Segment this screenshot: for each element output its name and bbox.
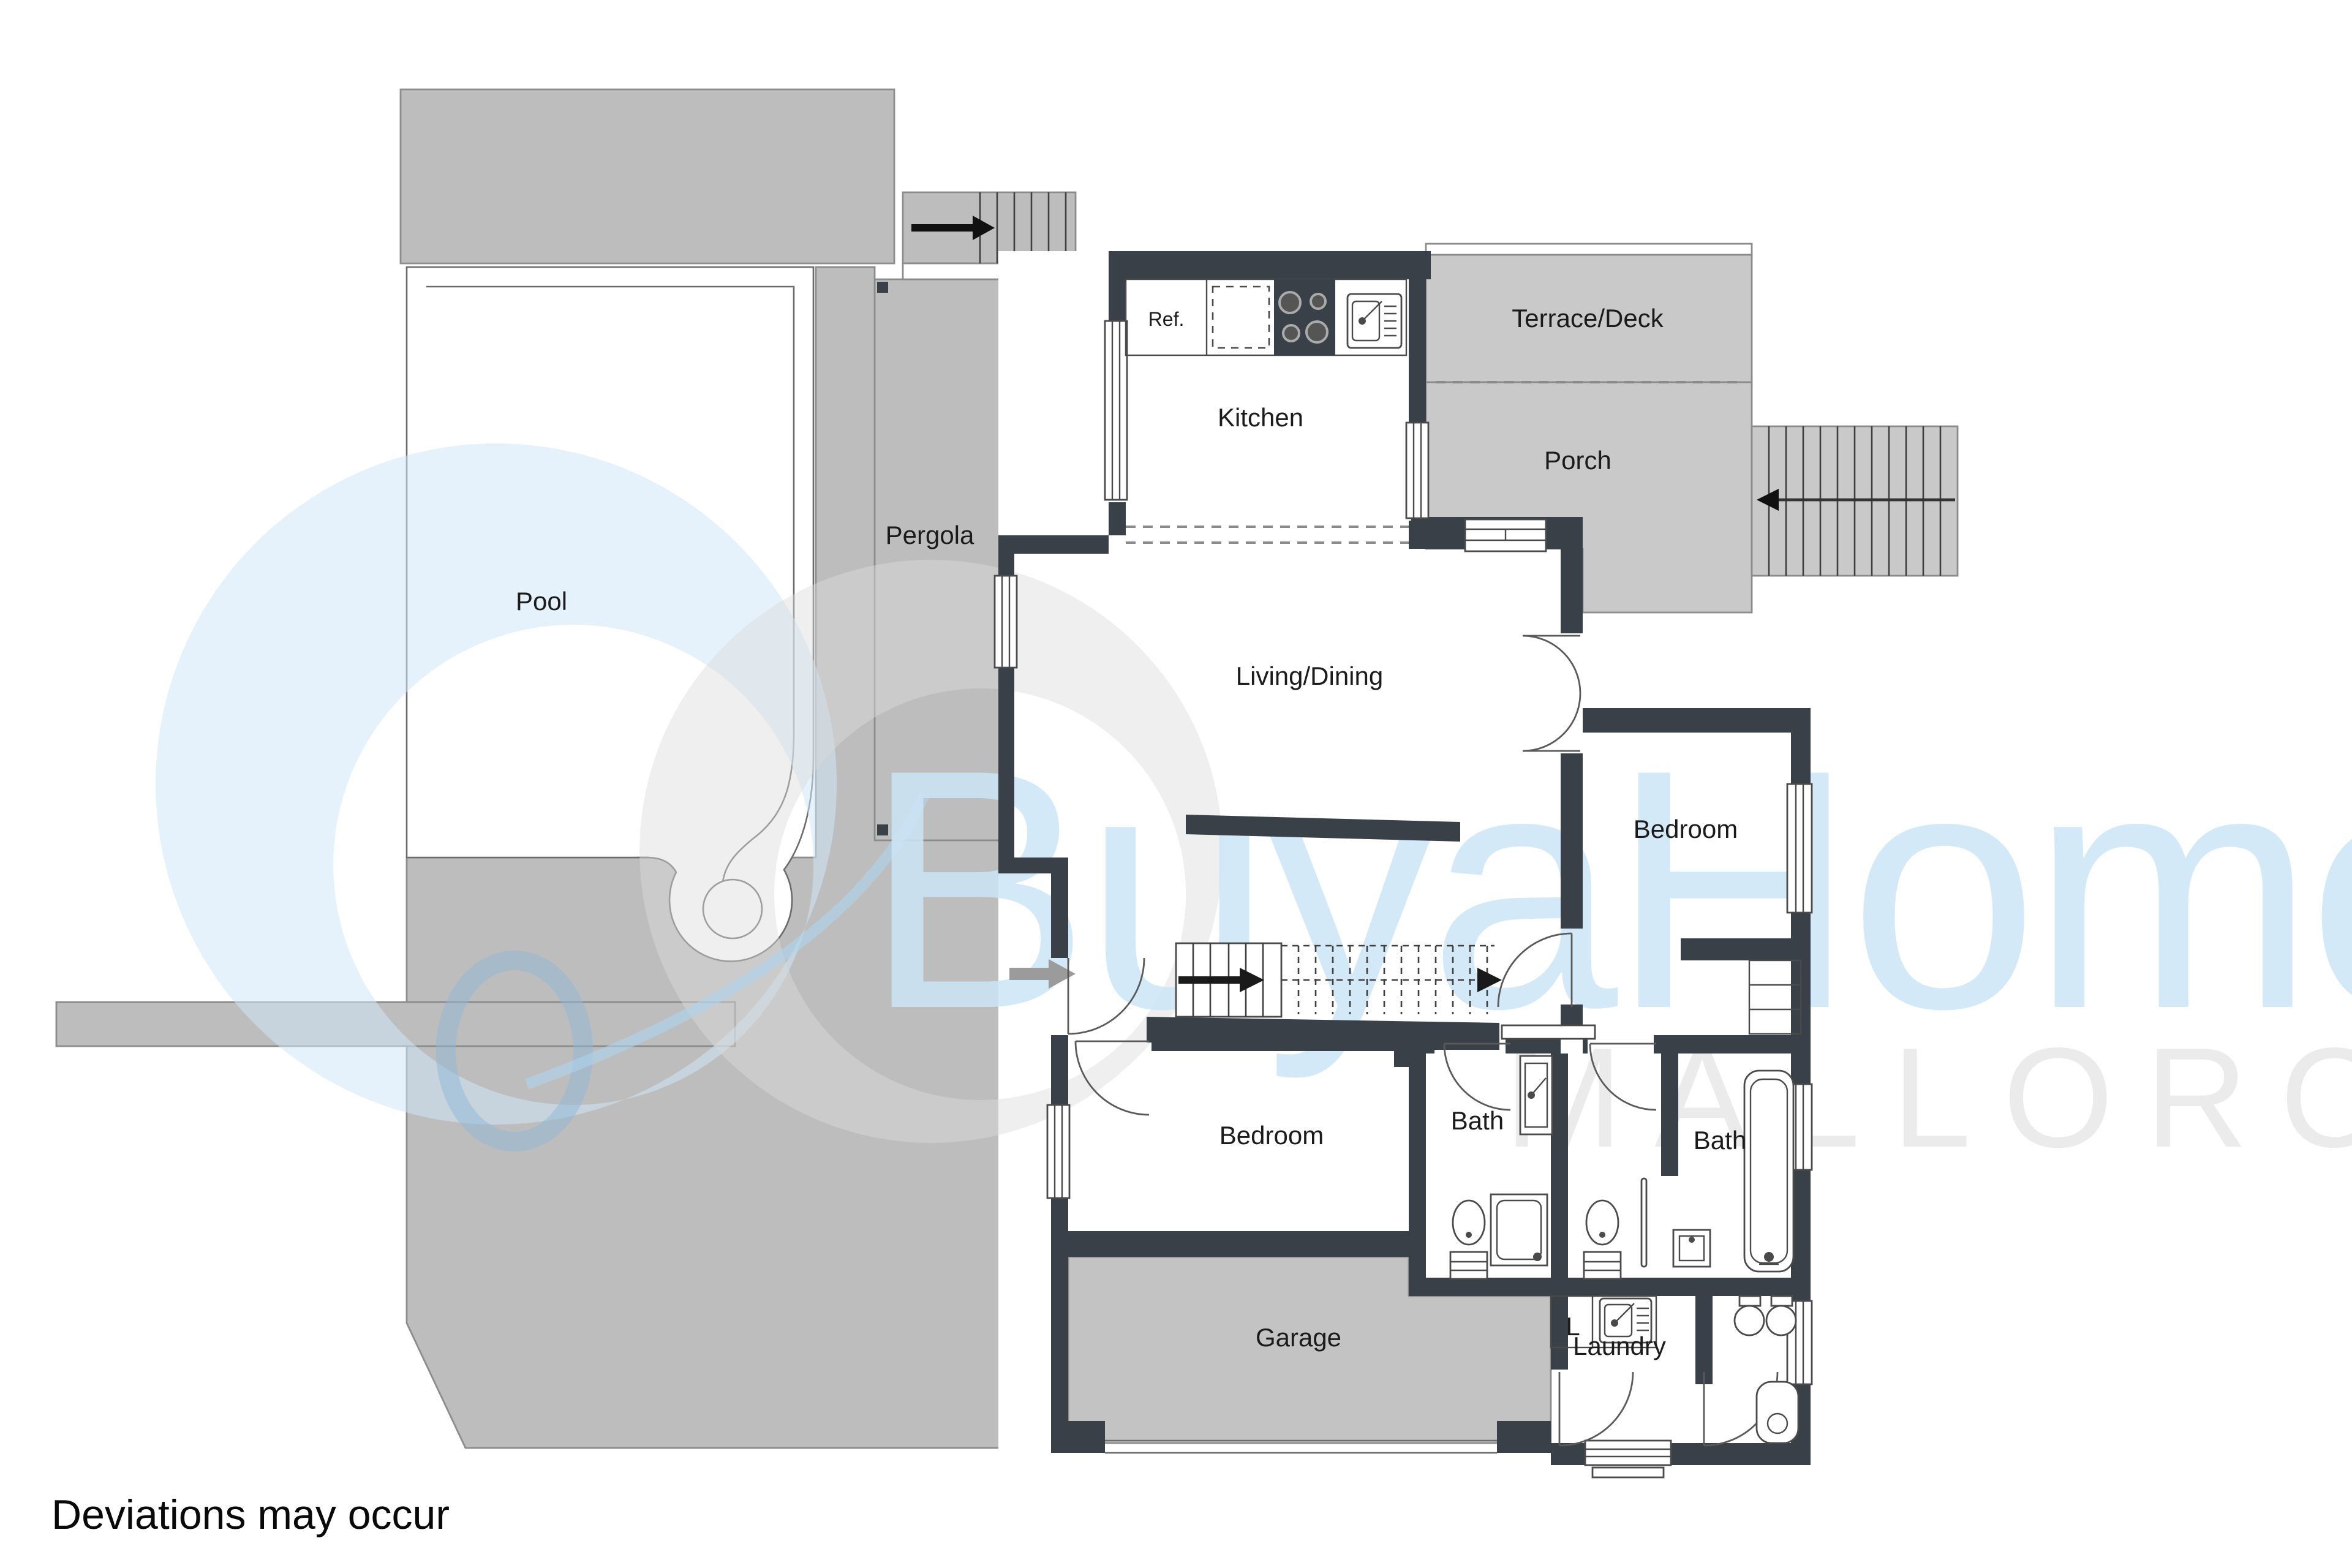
room-label-laundry: Laundry	[1573, 1332, 1666, 1360]
floor-plan: BuyaHome MALLORCA	[0, 0, 2352, 1568]
room-label-bedroom-left: Bedroom	[1219, 1121, 1324, 1150]
deck-top-band	[401, 89, 894, 263]
room-label-garage: Garage	[1256, 1323, 1341, 1352]
terrace-edge	[1426, 244, 1752, 255]
room-label-fridge: Ref.	[1148, 308, 1185, 330]
vanity-sink-icon	[1673, 1230, 1710, 1267]
room-label-kitchen: Kitchen	[1218, 403, 1303, 432]
stove-icon	[1274, 279, 1335, 355]
window	[1047, 1105, 1069, 1198]
bathroom-sink-icon	[1520, 1056, 1552, 1134]
window	[1406, 423, 1428, 518]
watermark-location: MALLORCA	[1504, 1019, 2352, 1177]
window	[1105, 321, 1127, 500]
room-label-terrace: Terrace/Deck	[1512, 304, 1664, 333]
room-label-living: Living/Dining	[1236, 661, 1383, 690]
shower-icon	[1491, 1194, 1547, 1265]
room-label-bath-left: Bath	[1451, 1106, 1504, 1135]
washer-icon	[1735, 1296, 1764, 1335]
room-label-bedroom-right: Bedroom	[1634, 815, 1738, 843]
bathtub-icon	[1744, 1071, 1793, 1272]
room-label-bath-right: Bath	[1694, 1126, 1746, 1155]
kitchen-sink-icon	[1347, 294, 1401, 348]
room-label-pool: Pool	[516, 587, 567, 616]
window-bench	[1465, 519, 1546, 551]
window	[995, 576, 1017, 668]
pergola-post	[877, 282, 888, 293]
stair-handrail	[1502, 1025, 1595, 1039]
glass-partition	[1642, 1178, 1646, 1267]
room-label-porch: Porch	[1544, 446, 1611, 475]
window	[1585, 1441, 1671, 1477]
disclaimer-text: Deviations may occur	[51, 1491, 450, 1538]
water-heater-icon	[1757, 1382, 1798, 1443]
window	[1787, 784, 1812, 913]
room-label-pergola: Pergola	[886, 521, 974, 549]
dryer-icon	[1766, 1296, 1796, 1335]
